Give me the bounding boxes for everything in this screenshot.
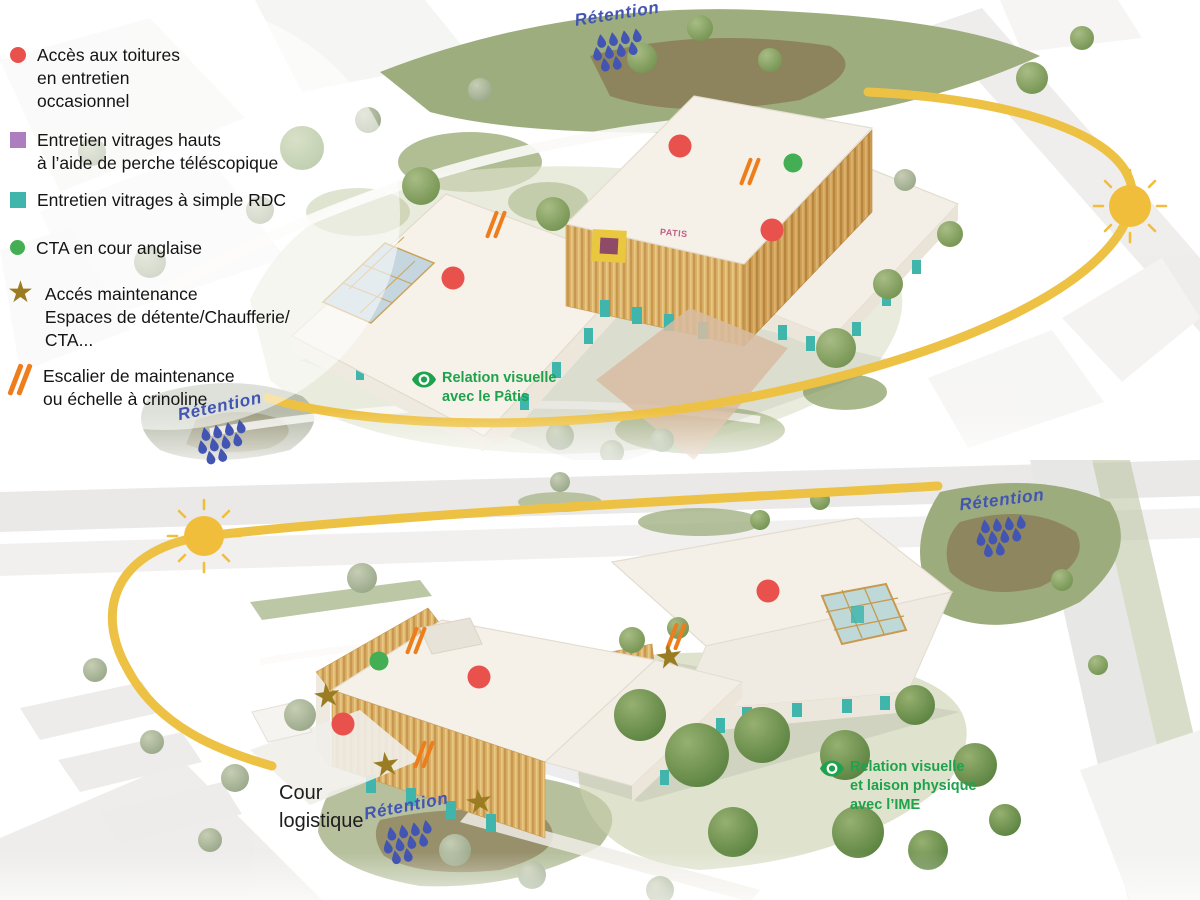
- legend-text: Espaces de détente/Chaufferie/: [45, 306, 290, 329]
- red-dot-icon: [10, 47, 26, 63]
- retention-label: Rétention: [958, 485, 1051, 562]
- legend-item-maintenance-stair: Escalier de maintenance ou échelle à cri…: [10, 365, 355, 411]
- legend-text: Entretien vitrages hauts: [37, 129, 278, 152]
- cour-logistique-label: Cour logistique: [279, 779, 364, 835]
- water-drops-icon: [967, 514, 1029, 561]
- relation-visuelle-patis-note: Relation visuelle avec le Pâtis: [412, 369, 556, 407]
- legend-text: ou échelle à crinoline: [43, 388, 235, 411]
- legend-item-ground-glazing: Entretien vitrages à simple RDC: [10, 189, 355, 212]
- gold-star-icon: ★: [7, 282, 34, 304]
- legend-item-maintenance-access: ★ Accés maintenance Espaces de détente/C…: [10, 283, 355, 352]
- teal-square-icon: [10, 192, 26, 208]
- legend-item-cta: CTA en cour anglaise: [10, 237, 355, 260]
- legend-text: Accès aux toitures: [37, 44, 180, 67]
- legend-text: Entretien vitrages à simple RDC: [37, 189, 286, 212]
- legend: Accès aux toitures en entretien occasion…: [10, 44, 355, 411]
- retention-label: Rétention: [573, 0, 668, 77]
- legend-text: à l’aide de perche téléscopique: [37, 152, 278, 175]
- sun-icon: [1109, 185, 1151, 227]
- eye-icon: [820, 760, 844, 777]
- legend-item-roof-access: Accès aux toitures en entretien occasion…: [10, 44, 355, 113]
- green-dot-icon: [10, 240, 25, 255]
- sun-icon: [184, 516, 224, 556]
- legend-text: Accés maintenance: [45, 283, 290, 306]
- relation-visuelle-ime-note: Relation visuelle et laison physique ave…: [820, 758, 977, 815]
- eye-icon: [412, 371, 436, 388]
- legend-text: Escalier de maintenance: [43, 365, 235, 388]
- legend-text: occasionnel: [37, 90, 180, 113]
- architectural-diagram: Accès aux toitures en entretien occasion…: [0, 0, 1200, 900]
- legend-item-high-glazing: Entretien vitrages hauts à l’aide de per…: [10, 129, 355, 175]
- legend-text: en entretien: [37, 67, 180, 90]
- orange-slashes-icon: [10, 363, 32, 399]
- legend-text: CTA...: [45, 329, 290, 352]
- legend-text: CTA en cour anglaise: [36, 237, 202, 260]
- purple-square-icon: [10, 132, 26, 148]
